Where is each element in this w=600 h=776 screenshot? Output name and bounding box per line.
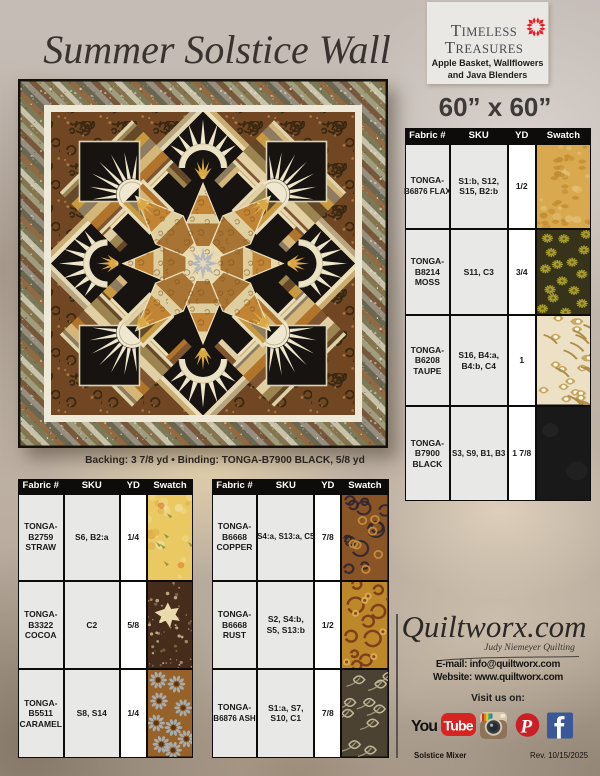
svg-text:You: You <box>411 718 437 735</box>
svg-text:P: P <box>520 717 533 738</box>
svg-text:Tube: Tube <box>444 718 474 734</box>
